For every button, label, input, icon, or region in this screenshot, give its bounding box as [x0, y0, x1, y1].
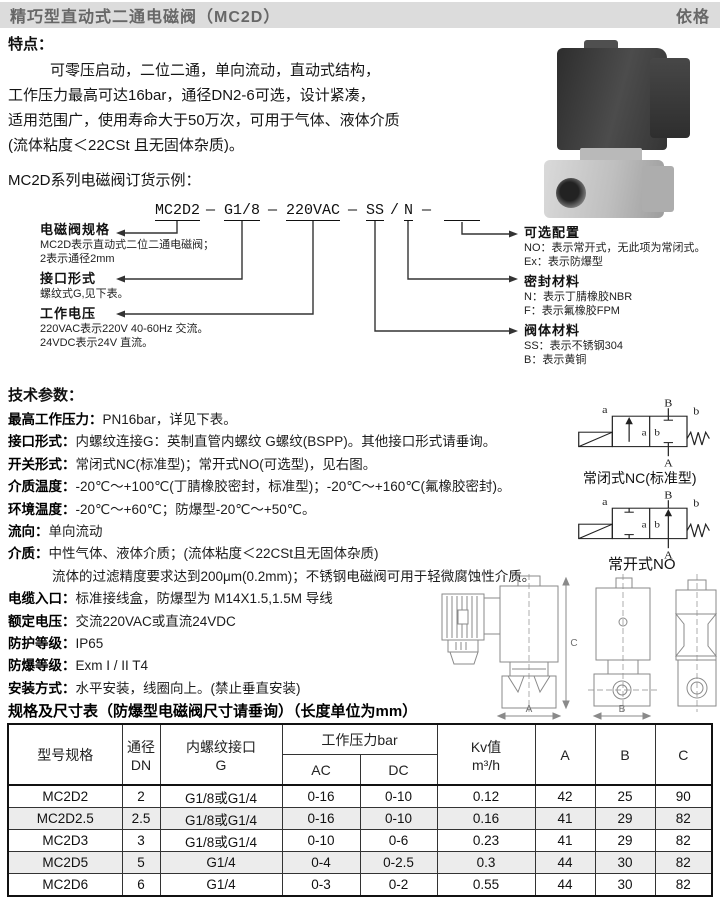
table-cell: 82	[655, 874, 712, 897]
tech-value: 标准接线盒，防爆型为 M14X1.5,1.5M 导线	[76, 591, 333, 606]
col-kv-line1: Kv值	[438, 737, 535, 757]
table-cell: 0-4	[282, 852, 360, 874]
order-label-desc: 螺纹式G,见下表。	[40, 287, 370, 301]
pos-b-label: b	[693, 498, 699, 509]
order-label-desc: B：表示黄铜	[524, 353, 720, 367]
table-cell: 0.16	[437, 808, 535, 830]
tech-label: 安装方式：	[8, 681, 76, 696]
col-thread-line2: G	[161, 757, 282, 773]
pos-a-label: a	[602, 405, 607, 416]
pn-model: MC2D2	[155, 202, 200, 221]
datasheet-page: 精巧型直动式二通电磁阀（MC2D） 依格 特点： 可零压启动，二位二通，单向流动…	[0, 0, 720, 899]
order-label-desc: 220VAC表示220V 40-60Hz 交流。	[40, 322, 370, 336]
ordering-heading: MC2D系列电磁阀订货示例：	[8, 169, 201, 190]
table-cell: 44	[535, 874, 595, 897]
table-cell: G1/8或G1/4	[160, 808, 282, 830]
order-label-desc: N：表示丁腈橡胶NBR	[524, 290, 720, 304]
nc-valve-symbol: B A a b a b	[575, 397, 715, 474]
table-cell: G1/8或G1/4	[160, 830, 282, 852]
table-cell: G1/4	[160, 852, 282, 874]
dim-c-label: C	[570, 638, 577, 649]
dim-b-label: B	[619, 704, 626, 715]
table-cell: 44	[535, 852, 595, 874]
table-cell: 41	[535, 808, 595, 830]
col-kv-line2: m³/h	[438, 757, 535, 773]
table-cell: MC2D2	[8, 785, 122, 808]
pn-slash: /	[390, 202, 399, 220]
col-dn-line2: DN	[123, 757, 160, 773]
order-label-group-right-0: 可选配置NO：表示常开式，无此项为常闭式。Ex：表示防爆型	[524, 225, 720, 269]
tech-value: 交流220VAC或直流24VDC	[76, 614, 236, 629]
table-cell: 0-16	[282, 808, 360, 830]
pn-port: G1/8	[224, 202, 260, 221]
table-row: MC2D22G1/8或G1/40-160-100.12422590	[8, 785, 712, 808]
features-line: 可零压启动，二位二通，单向流动，直动式结构，	[8, 58, 523, 83]
features-line: 适用范围广，使用寿命大于50万次，可用于气体、液体介质	[8, 108, 523, 133]
inner-b-label: b	[654, 428, 660, 438]
table-cell: 29	[595, 808, 655, 830]
col-thread: 内螺纹接口 G	[160, 724, 282, 785]
tech-label: 流向：	[8, 524, 49, 539]
order-label-group-right-2: 阀体材料SS：表示不锈钢304B：表示黄铜	[524, 323, 720, 367]
tech-label: 接口形式：	[8, 434, 76, 449]
table-cell: 41	[535, 830, 595, 852]
table-cell: 0.3	[437, 852, 535, 874]
tech-value: 中性气体、液体介质；(流体粘度＜22CSt且无固体杂质)	[49, 546, 379, 561]
spec-table: 型号规格 通径 DN 内螺纹接口 G 工作压力bar Kv值 m³/h A B …	[7, 723, 713, 897]
pos-a-label: a	[602, 497, 607, 508]
pn-sep4: —	[422, 202, 431, 220]
table-cell: 29	[595, 830, 655, 852]
table-cell: 42	[535, 785, 595, 808]
tech-value: 内螺纹连接G：英制直管内螺纹 G螺纹(BSPP)。其他接口形式请垂询。	[76, 434, 497, 449]
table-cell: 30	[595, 874, 655, 897]
tech-value: IP65	[76, 636, 104, 651]
order-label-title: 阀体材料	[524, 323, 720, 339]
nc-symbol-caption: 常闭式NC(标准型)	[583, 468, 697, 488]
table-cell: MC2D6	[8, 874, 122, 897]
table-cell: 5	[122, 852, 160, 874]
order-label-desc: 24VDC表示24V 直流。	[40, 336, 370, 350]
table-cell: G1/4	[160, 874, 282, 897]
pn-sep1: —	[206, 202, 215, 220]
order-label-group-left-1: 接口形式螺纹式G,见下表。	[40, 271, 370, 301]
features-line: 工作压力最高可达16bar，通径DN2-6可选，设计紧凑，	[8, 83, 523, 108]
flow-arrow	[625, 417, 632, 424]
col-c: C	[655, 724, 712, 785]
table-cell: 0.12	[437, 785, 535, 808]
no-symbol-caption: 常开式NO	[608, 553, 676, 574]
table-cell: 82	[655, 852, 712, 874]
tech-value: Exm I / II T4	[76, 658, 149, 673]
ordering-right-labels: 可选配置NO：表示常开式，无此项为常闭式。Ex：表示防爆型密封材料N：表示丁腈橡…	[524, 225, 720, 372]
table-cell: 3	[122, 830, 160, 852]
connector-housing	[650, 58, 690, 138]
col-a: A	[535, 724, 595, 785]
order-label-title: 密封材料	[524, 274, 720, 290]
order-label-desc: Ex：表示防爆型	[524, 255, 720, 269]
table-cell: 82	[655, 808, 712, 830]
table-cell: MC2D5	[8, 852, 122, 874]
tech-label: 额定电压：	[8, 614, 76, 629]
order-label-title: 接口形式	[40, 271, 370, 287]
tech-label: 介质温度：	[8, 479, 76, 494]
product-photo	[522, 40, 717, 218]
col-pressure: 工作压力bar	[282, 724, 437, 755]
port-b-label: B	[664, 398, 672, 409]
col-ac: AC	[282, 755, 360, 786]
table-cell: 82	[655, 830, 712, 852]
pn-option-blank	[444, 202, 480, 221]
table-cell: 0-3	[282, 874, 360, 897]
tech-line: 最高工作压力：PN16bar，详见下表。	[8, 409, 588, 431]
table-cell: 0-10	[282, 830, 360, 852]
inner-b-label: b	[654, 520, 660, 530]
table-cell: MC2D3	[8, 830, 122, 852]
table-cell: 30	[595, 852, 655, 874]
table-cell: 6	[122, 874, 160, 897]
table-cell: 0-2.5	[360, 852, 437, 874]
features-text: 可零压启动，二位二通，单向流动，直动式结构，工作压力最高可达16bar，通径DN…	[8, 58, 523, 158]
order-label-desc: NO：表示常开式，无此项为常闭式。	[524, 241, 720, 255]
tech-line: 介质：中性气体、液体介质；(流体粘度＜22CSt且无固体杂质)	[8, 543, 588, 565]
tech-label: 最高工作压力：	[8, 412, 103, 427]
page-header: 精巧型直动式二通电磁阀（MC2D） 依格	[0, 2, 720, 28]
ordering-left-labels: 电磁阀规格MC2D表示直动式二位二通电磁阀；2表示通径2mm接口形式螺纹式G,见…	[40, 222, 370, 355]
table-cell: 0-10	[360, 808, 437, 830]
dim-a-label: A	[526, 704, 533, 715]
table-cell: G1/8或G1/4	[160, 785, 282, 808]
table-row: MC2D2.52.5G1/8或G1/40-160-100.16412982	[8, 808, 712, 830]
no-symbol-graphic: B A a b a b	[575, 489, 715, 561]
pn-sep2: —	[268, 202, 277, 220]
features-heading: 特点：	[8, 33, 523, 54]
inner-a-label: a	[642, 520, 647, 530]
col-model: 型号规格	[8, 724, 122, 785]
pn-sep3: —	[348, 202, 357, 220]
col-b: B	[595, 724, 655, 785]
order-label-title: 电磁阀规格	[40, 222, 370, 238]
order-label-group-left-0: 电磁阀规格MC2D表示直动式二位二通电磁阀；2表示通径2mm	[40, 222, 370, 266]
tech-value: -20℃～+60℃；防爆型-20℃～+50℃。	[76, 502, 316, 517]
tech-line: 接口形式：内螺纹连接G：英制直管内螺纹 G螺纹(BSPP)。其他接口形式请垂询。	[8, 431, 588, 453]
table-row: MC2D55G1/40-40-2.50.3443082	[8, 852, 712, 874]
table-cell: 25	[595, 785, 655, 808]
table-cell: 0.55	[437, 874, 535, 897]
order-label-desc: MC2D表示直动式二位二通电磁阀；	[40, 238, 370, 252]
tech-value: -20℃～+100℃(丁腈橡胶密封，标准型)；-20℃～+160℃(氟橡胶密封)…	[76, 479, 511, 494]
tech-value: PN16bar，详见下表。	[103, 412, 237, 427]
col-dc: DC	[360, 755, 437, 786]
tech-label: 环境温度：	[8, 502, 76, 517]
order-label-group-left-2: 工作电压220VAC表示220V 40-60Hz 交流。24VDC表示24V 直…	[40, 306, 370, 350]
order-label-desc: F：表示氟橡胶FPM	[524, 304, 720, 318]
pn-voltage: 220VAC	[286, 202, 340, 221]
order-label-title: 工作电压	[40, 306, 370, 322]
features-section: 特点： 可零压启动，二位二通，单向流动，直动式结构，工作压力最高可达16bar，…	[8, 33, 523, 158]
pn-seal: N	[404, 202, 413, 221]
tech-heading: 技术参数：	[8, 384, 588, 405]
tech-label: 开关形式：	[8, 457, 76, 472]
table-cell: 0.23	[437, 830, 535, 852]
tech-value: 单向流动	[49, 524, 103, 539]
table-cell: 90	[655, 785, 712, 808]
tech-label: 电缆入口：	[8, 591, 76, 606]
table-cell: 2.5	[122, 808, 160, 830]
order-label-desc: SS：表示不锈钢304	[524, 339, 720, 353]
flow-arrow	[665, 509, 672, 516]
table-row: MC2D33G1/8或G1/40-100-60.23412982	[8, 830, 712, 852]
nc-symbol-graphic: B A a b a b	[575, 397, 715, 469]
valve-drawing: A B C	[438, 572, 720, 722]
features-line: (流体粘度＜22CSt 且无固体杂质)。	[8, 133, 523, 158]
pn-body: SS	[366, 202, 384, 221]
spec-table-title: 规格及尺寸表（防爆型电磁阀尺寸请垂询）（长度单位为mm）	[8, 700, 417, 721]
col-dn-line1: 通径	[123, 737, 160, 757]
table-cell: 2	[122, 785, 160, 808]
port-b-label: B	[664, 490, 672, 501]
page-title: 精巧型直动式二通电磁阀（MC2D）	[10, 3, 280, 27]
tech-label: 防护等级：	[8, 636, 76, 651]
tech-label: 防爆等级：	[8, 658, 76, 673]
order-label-title: 可选配置	[524, 225, 720, 241]
ordering-diagram: MC2D2 — G1/8 — 220VAC — SS / N — 电磁阀规格MC…	[0, 195, 720, 380]
tech-value: 水平安装，线圈向上。(禁止垂直安装)	[76, 681, 301, 696]
col-dn: 通径 DN	[122, 724, 160, 785]
inner-a-label: a	[642, 428, 647, 438]
table-cell: 0-16	[282, 785, 360, 808]
tech-line: 流向：单向流动	[8, 521, 588, 543]
table-row: MC2D66G1/40-30-20.55443082	[8, 874, 712, 897]
table-cell: MC2D2.5	[8, 808, 122, 830]
order-label-group-right-1: 密封材料N：表示丁腈橡胶NBRF：表示氟橡胶FPM	[524, 274, 720, 318]
tech-label: 介质：	[8, 546, 49, 561]
tech-value: 常闭式NC(标准型)；常开式NO(可选型)，见右图。	[76, 457, 377, 472]
table-cell: 0-10	[360, 785, 437, 808]
brand-name: 依格	[676, 3, 710, 27]
table-cell: 0-6	[360, 830, 437, 852]
table-cell: 0-2	[360, 874, 437, 897]
order-label-desc: 2表示通径2mm	[40, 252, 370, 266]
pos-b-label: b	[693, 406, 699, 417]
col-kv: Kv值 m³/h	[437, 724, 535, 785]
tech-line: 环境温度：-20℃～+60℃；防爆型-20℃～+50℃。	[8, 499, 588, 521]
tech-line: 介质温度：-20℃～+100℃(丁腈橡胶密封，标准型)；-20℃～+160℃(氟…	[8, 476, 588, 498]
col-thread-line1: 内螺纹接口	[161, 737, 282, 757]
tech-line: 开关形式：常闭式NC(标准型)；常开式NO(可选型)，见右图。	[8, 454, 588, 476]
